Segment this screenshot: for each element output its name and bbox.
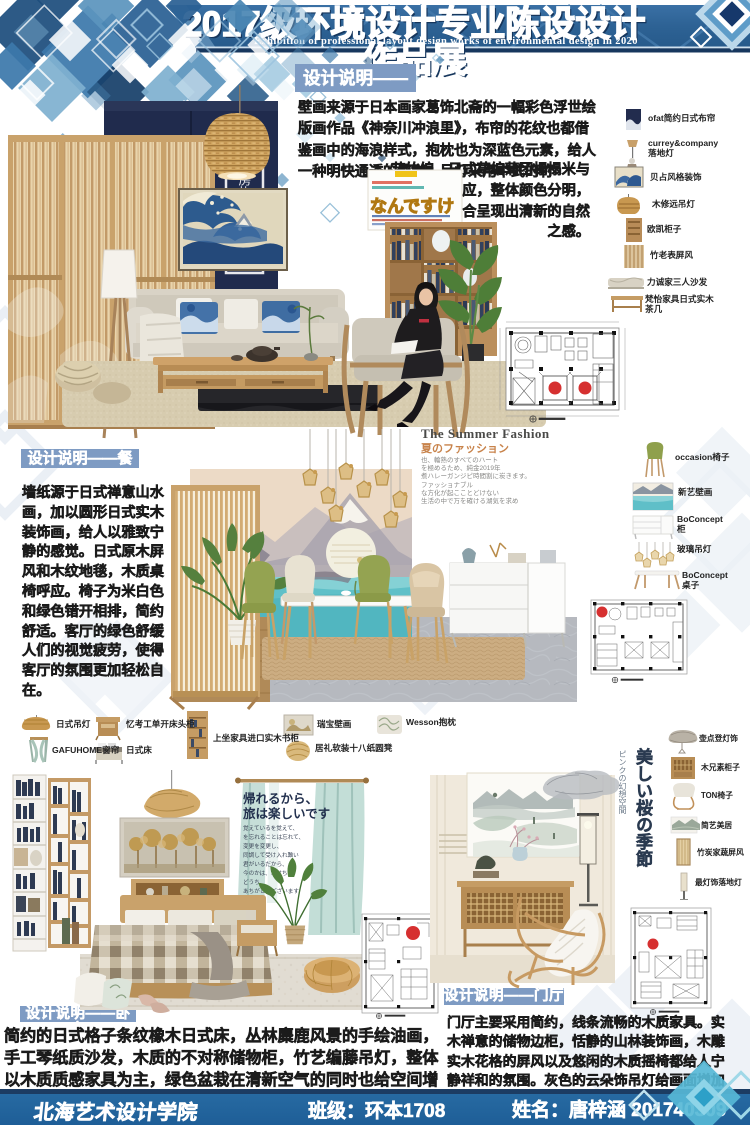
svg-text:茶几: 茶几 xyxy=(644,303,663,314)
svg-text:Wesson抱枕: Wesson抱枕 xyxy=(406,716,456,727)
svg-text:覚えているを覚えて、: 覚えているを覚えて、 xyxy=(243,824,298,832)
svg-text:を忘れることは忘れて、: を忘れることは忘れて、 xyxy=(243,833,304,841)
svg-text:君がいるだから、: 君がいるだから、 xyxy=(243,860,288,868)
svg-text:梵怡家具日式实木: 梵怡家具日式实木 xyxy=(645,293,714,304)
svg-text:贝占风格装饰: 贝占风格装饰 xyxy=(650,171,702,182)
svg-text:简艺美居: 简艺美居 xyxy=(701,820,732,830)
svg-text:最灯饰落地灯: 最灯饰落地灯 xyxy=(695,877,742,887)
svg-text:日式床: 日式床 xyxy=(126,744,152,755)
svg-text:同調して受け入れ難い: 同調して受け入れ難い xyxy=(243,851,299,859)
svg-text:ofat简约日式布帘: ofat简约日式布帘 xyxy=(648,112,716,123)
svg-text:新艺壁画: 新艺壁画 xyxy=(678,486,712,497)
svg-text:occasion椅子: occasion椅子 xyxy=(675,451,730,462)
svg-text:木修远吊灯: 木修远吊灯 xyxy=(651,198,695,209)
svg-text:変更を変更し、: 変更を変更し、 xyxy=(243,842,282,850)
svg-text:竹老表屏风: 竹老表屏风 xyxy=(649,249,693,260)
svg-text:竹炭家蔬屏风: 竹炭家蔬屏风 xyxy=(696,847,744,857)
svg-text:BoConcept: BoConcept xyxy=(682,570,728,580)
svg-text:帰れるから、: 帰れるから、 xyxy=(243,791,318,806)
svg-text:BoConcept: BoConcept xyxy=(677,514,723,524)
svg-text:上坐家具进口实木书柜: 上坐家具进口实木书柜 xyxy=(213,732,299,743)
svg-text:currey&company: currey&company xyxy=(648,138,718,148)
svg-text:居礼软装十八纸圆凳: 居礼软装十八纸圆凳 xyxy=(315,742,393,753)
svg-text:落地灯: 落地灯 xyxy=(648,147,674,158)
svg-text:壶点登灯饰: 壶点登灯饰 xyxy=(699,733,738,743)
svg-text:柜: 柜 xyxy=(676,523,686,534)
svg-text:木兄素柜子: 木兄素柜子 xyxy=(700,762,740,772)
svg-text:旅は楽しいです: 旅は楽しいです xyxy=(242,806,330,821)
svg-text:桌子: 桌子 xyxy=(681,579,700,590)
svg-text:忆考工单开床头柜: 忆考工单开床头柜 xyxy=(126,718,195,729)
svg-text:玻璃吊灯: 玻璃吊灯 xyxy=(677,543,712,554)
svg-text:瑞宝壁画: 瑞宝壁画 xyxy=(317,718,351,729)
svg-text:力诚家三人沙发: 力诚家三人沙发 xyxy=(647,276,708,287)
svg-text:GAFUHOME窗帘: GAFUHOME窗帘 xyxy=(52,744,120,755)
svg-text:欧凯柜子: 欧凯柜子 xyxy=(647,223,682,234)
svg-text:今のかは、幸せちゃ: 今のかは、幸せちゃ xyxy=(243,869,293,877)
svg-text:TON椅子: TON椅子 xyxy=(701,790,733,800)
svg-text:日式吊灯: 日式吊灯 xyxy=(56,718,91,729)
svg-text:なんですけ: なんですけ xyxy=(370,197,454,216)
